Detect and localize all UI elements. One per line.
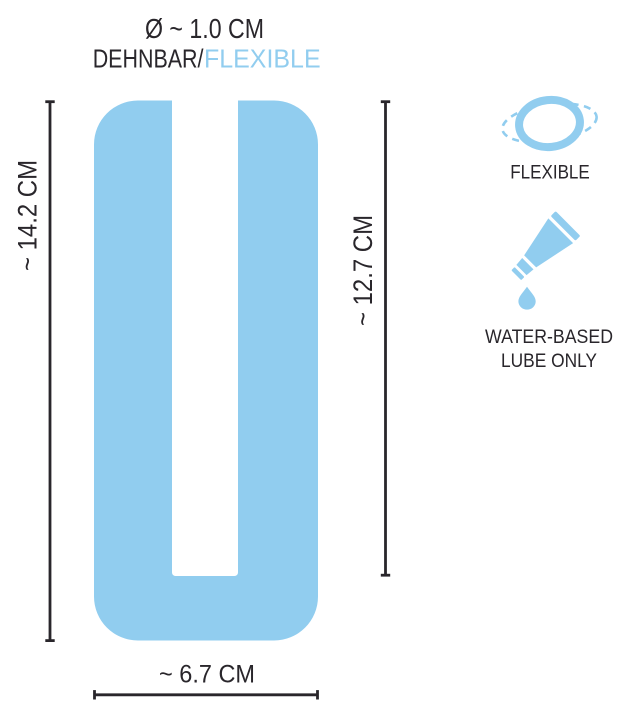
svg-text:WATER-BASED: WATER-BASED: [485, 326, 613, 348]
svg-text:Ø ~ 1.0 CM: Ø ~ 1.0 CM: [145, 13, 264, 44]
svg-text:FLEXIBLE: FLEXIBLE: [204, 46, 321, 74]
svg-text:FLEXIBLE: FLEXIBLE: [510, 162, 590, 184]
svg-text:LUBE ONLY: LUBE ONLY: [501, 350, 597, 372]
svg-text:DEHNBAR/: DEHNBAR/: [93, 46, 205, 74]
svg-text:~ 14.2 CM: ~ 14.2 CM: [13, 160, 43, 271]
svg-text:~ 6.7 CM: ~ 6.7 CM: [159, 661, 255, 689]
svg-text:~ 12.7 CM: ~ 12.7 CM: [348, 215, 378, 326]
